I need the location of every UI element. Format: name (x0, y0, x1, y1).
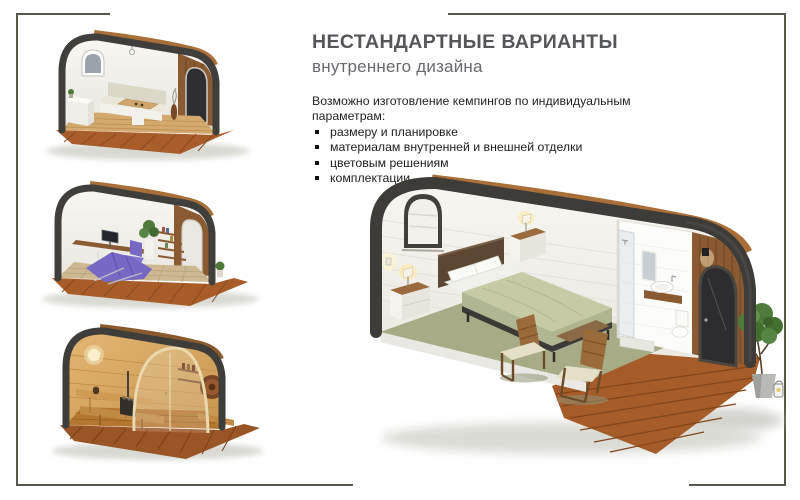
frame-border-bottom-left (16, 484, 353, 486)
bullet-text: размеру и планировке (330, 125, 458, 139)
sauna-pod-image (30, 313, 275, 468)
header: НЕСТАНДАРТНЫЕ ВАРИАНТЫ внутреннего дизай… (312, 30, 618, 77)
wall-lamp (382, 253, 396, 271)
office-pod-image (22, 172, 272, 317)
bullet-square-icon (315, 161, 319, 165)
bullet-square-icon (315, 176, 319, 180)
gothic-window (402, 194, 444, 251)
bullet-item: размеру и планировке (312, 125, 692, 140)
dining-pod-image (28, 20, 268, 170)
bedroom-pod-image (356, 170, 786, 480)
arched-window (82, 50, 104, 76)
deck-plant (216, 262, 225, 278)
sauna-pod-render (30, 313, 275, 468)
mirror (642, 250, 656, 282)
slide: НЕСТАНДАРТНЫЕ ВАРИАНТЫ внутреннего дизай… (0, 0, 800, 500)
bullet-text: цветовым решениям (330, 156, 449, 170)
frame-border-left (16, 13, 18, 486)
bedroom-pod-render (356, 170, 786, 480)
shower-glass (619, 230, 634, 338)
page-title: НЕСТАНДАРТНЫЕ ВАРИАНТЫ (312, 30, 618, 54)
bathroom (618, 220, 692, 354)
bullet-item: цветовым решениям (312, 156, 692, 171)
bullet-square-icon (315, 130, 319, 134)
intro-text: Возможно изготовление кемпингов по индив… (312, 94, 692, 124)
sauna-light (88, 349, 101, 362)
frame-border-top-left (16, 13, 110, 15)
arched-glass-door (700, 267, 736, 366)
office-pod-render (22, 172, 272, 317)
page-subtitle: внутреннего дизайна (312, 56, 618, 77)
bullet-item: материалам внутренней и внешней отделки (312, 140, 692, 155)
bullet-square-icon (315, 145, 319, 149)
outdoor-lamp (702, 248, 709, 256)
frame-border-bottom-right (689, 484, 786, 486)
bullet-text: материалам внутренней и внешней отделки (330, 140, 582, 154)
sauna-bucket (93, 387, 99, 394)
lantern (774, 381, 783, 397)
frame-border-top-right (448, 13, 786, 15)
dining-pod-render (28, 20, 268, 170)
